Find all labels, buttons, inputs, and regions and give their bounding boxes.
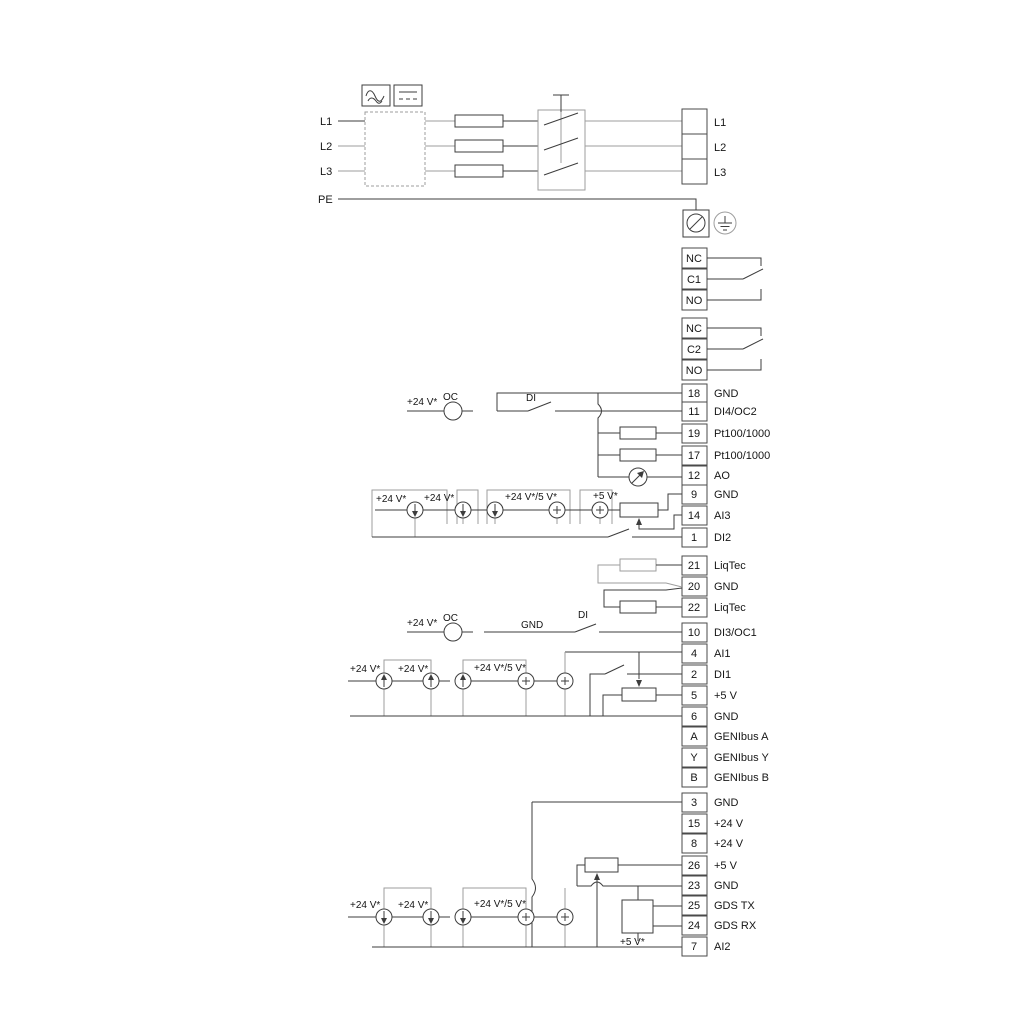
input-label-l3: L3 [320, 166, 332, 178]
input-label-l2: L2 [320, 141, 332, 153]
v24-label: +24 V* [407, 397, 437, 408]
terminal-label: L2 [714, 142, 726, 154]
voltage-source-icon [592, 502, 608, 518]
wire-gnd3 [532, 802, 682, 947]
gds-sensor-box [622, 900, 653, 933]
pt100-resistor-icon [620, 449, 656, 461]
v24-label: +24 V* [398, 900, 428, 911]
voltage-source-icon [557, 909, 573, 925]
v24-5v-label: +24 V*/5 V* [505, 492, 557, 503]
terminal-number: 7 [691, 941, 697, 953]
terminal-number: 20 [688, 581, 700, 593]
terminal-label: GDS TX [714, 900, 755, 912]
terminal-label: Pt100/1000 [714, 428, 770, 440]
earth-icon [718, 216, 732, 230]
terminal-number: 4 [691, 648, 697, 660]
v24-label: +24 V* [398, 664, 428, 675]
terminal-label: DI1 [714, 669, 731, 681]
terminal-number: Y [690, 752, 698, 764]
v5-label: +5 V* [620, 937, 645, 948]
filter-box [365, 112, 425, 186]
option-brackets [384, 652, 565, 716]
wire-fuses-to-switch [503, 121, 538, 171]
option-stubs [415, 518, 600, 537]
wire-l2-l3-in [338, 146, 365, 171]
dc-symbol-box [394, 85, 422, 106]
potentiometer-icon [620, 503, 658, 517]
terminal-label: GND [714, 711, 739, 723]
terminal-label: AO [714, 470, 730, 482]
dc-symbol-icon [399, 92, 417, 99]
terminal-number: 12 [688, 470, 700, 482]
terminal-label: DI3/OC1 [714, 627, 757, 639]
ai1-option-wiring: +24 V* +24 V* +24 V*/5 V* [348, 652, 682, 716]
di1-switch-icon [605, 665, 624, 674]
terminal-label: +24 V [714, 818, 744, 830]
wire-pot-to-gnd [603, 695, 622, 716]
current-source-icon [423, 909, 439, 925]
oc-label: OC [443, 613, 458, 624]
switch-handle-icon [553, 95, 569, 112]
io-bottom-terminal-block: 3 GND 15 +24 V 8 +24 V 26 +5 V 23 GND 25… [682, 793, 757, 956]
sensor-bus-vertical [598, 393, 602, 477]
terminal-label: C2 [687, 344, 701, 356]
terminal-label: +5 V [714, 860, 738, 872]
potentiometer-icon [585, 858, 618, 872]
terminal-number: 26 [688, 860, 700, 872]
terminal-number: 8 [691, 838, 697, 850]
v24-label: +24 V* [424, 493, 454, 504]
terminal-number: 22 [688, 602, 700, 614]
liqtec-sensor-icon [620, 601, 656, 613]
liqtec-loop-1 [598, 565, 682, 587]
terminal-l3 [682, 159, 707, 184]
relay1-contact-icon [743, 269, 763, 279]
pot-wiper-arrowhead [636, 518, 642, 525]
terminal-number: B [690, 772, 697, 784]
terminal-number: A [690, 731, 698, 743]
terminal-number: 24 [688, 920, 700, 932]
v24-5v-label: +24 V*/5 V* [474, 663, 526, 674]
liqtec-sensor-icon [620, 559, 656, 571]
v24-label: +24 V* [407, 618, 437, 629]
v24-label: +24 V* [350, 900, 380, 911]
terminal-label: GND [714, 797, 739, 809]
input-label-pe: PE [318, 194, 333, 206]
terminal-label: DI4/OC2 [714, 406, 757, 418]
gnd-wire-label: GND [521, 620, 543, 631]
voltage-source-icon [518, 673, 534, 689]
wire-di-box-to-gnd18 [497, 393, 682, 411]
fuse-l2-icon [455, 140, 503, 152]
terminal-label: LiqTec [714, 602, 746, 614]
wire-gnd23 [577, 882, 682, 886]
terminal-number: 5 [691, 690, 697, 702]
current-source-icon [423, 673, 439, 689]
terminal-label: GENIbus B [714, 772, 769, 784]
di-label: DI [526, 393, 536, 404]
terminal-number: 17 [688, 450, 700, 462]
ac-symbol-icon [366, 91, 384, 104]
relay2-section: NC C2 NO [682, 318, 763, 380]
ai3-option-wiring: +24 V* +24 V* +24 V*/5 V* +5 V* [372, 490, 682, 537]
ai2-gds-option-wiring: +24 V* +24 V* +24 V*/5 V* +5 V* [348, 802, 682, 948]
terminal-label: GENIbus Y [714, 752, 769, 764]
relay1-wires [707, 258, 761, 300]
terminal-number: 23 [688, 880, 700, 892]
current-source-icon [455, 673, 471, 689]
fuse-l3-icon [455, 165, 503, 177]
current-source-icon [376, 909, 392, 925]
terminal-l1 [682, 109, 707, 134]
pt100-resistor-icon [620, 427, 656, 439]
terminal-number: 19 [688, 428, 700, 440]
terminal-label: +24 V [714, 838, 744, 850]
terminal-number: 9 [691, 489, 697, 501]
v5-label: +5 V* [593, 491, 618, 502]
terminal-label: DI2 [714, 532, 731, 544]
potentiometer-icon [622, 688, 656, 701]
terminal-label: GND [714, 581, 739, 593]
terminal-label: L1 [714, 117, 726, 129]
current-source-icon [407, 502, 423, 518]
fuse-l1-icon [455, 115, 503, 127]
liqtec-terminal-block: 21 LiqTec 20 GND 22 LiqTec [598, 556, 746, 617]
terminal-label: GND [714, 388, 739, 400]
input-label-l1: L1 [320, 116, 332, 128]
terminal-number: 18 [688, 388, 700, 400]
relay2-contact-icon [743, 339, 763, 349]
terminal-number: 25 [688, 900, 700, 912]
current-source-icon [487, 502, 503, 518]
terminal-label: NO [686, 365, 703, 377]
power-input-section: L1 L2 L3 PE L1 L2 L3 [318, 85, 736, 237]
terminal-label: GND [714, 489, 739, 501]
terminal-l2 [682, 134, 707, 159]
terminal-number: 6 [691, 711, 697, 723]
open-collector-icon [444, 623, 462, 641]
terminal-label: LiqTec [714, 560, 746, 572]
terminal-label: NO [686, 295, 703, 307]
open-collector-icon [444, 402, 462, 420]
relay1-section: NC C1 NO [682, 248, 763, 310]
wire-pot-left [577, 865, 585, 886]
terminal-label: Pt100/1000 [714, 450, 770, 462]
terminal-number: 14 [688, 510, 700, 522]
terminal-label: NC [686, 253, 702, 265]
terminal-number: 1 [691, 532, 697, 544]
wire-gds-txrx [653, 906, 682, 926]
current-source-icon [455, 909, 471, 925]
di4-pt100-ao-wiring: +24 V* OC DI [407, 392, 682, 486]
v24-label: +24 V* [376, 494, 406, 505]
terminal-number: 3 [691, 797, 697, 809]
di2-switch-icon [608, 529, 629, 537]
terminal-number: 21 [688, 560, 700, 572]
terminal-label: GDS RX [714, 920, 757, 932]
io-mid-terminal-block: 4 AI1 2 DI1 5 +5 V 6 GND A GENIbus A Y G… [682, 644, 769, 787]
v24-5v-label: +24 V*/5 V* [474, 899, 526, 910]
v24-label: +24 V* [350, 664, 380, 675]
terminal-label: C1 [687, 274, 701, 286]
terminal-number: 11 [688, 406, 699, 418]
terminal-label: AI3 [714, 510, 731, 522]
di3-switch-icon [575, 624, 596, 632]
di-label: DI [578, 610, 588, 621]
wiring-diagram-page: L1 L2 L3 PE L1 L2 L3 [0, 0, 1024, 1024]
terminal-label: AI1 [714, 648, 731, 660]
pot-wiper-arrowhead [636, 680, 642, 687]
terminal-label: GND [714, 880, 739, 892]
io-top-terminal-block: 18 GND 11 DI4/OC2 19 Pt100/1000 17 Pt100… [682, 384, 770, 547]
oc-label: OC [443, 392, 458, 403]
wiring-diagram: L1 L2 L3 PE L1 L2 L3 [0, 0, 1024, 1024]
wire-pot-to-gnd9 [658, 494, 682, 510]
current-source-icon [376, 673, 392, 689]
terminal-label: NC [686, 323, 702, 335]
terminal-label: +5 V [714, 690, 738, 702]
terminal-number: 10 [688, 627, 700, 639]
terminal-label: GENIbus A [714, 731, 769, 743]
voltage-source-icon [557, 673, 573, 689]
terminal-label: L3 [714, 167, 726, 179]
terminal-label: AI2 [714, 941, 731, 953]
wire-filter-to-fuses [425, 121, 455, 171]
pot-wiper-arrowhead [594, 873, 600, 880]
wire-pe [338, 199, 696, 210]
terminal-number: 15 [688, 818, 700, 830]
terminal-number: 2 [691, 669, 697, 681]
voltage-source-icon [518, 909, 534, 925]
voltage-source-icon [549, 502, 565, 518]
wire-switch-to-terminals [585, 121, 682, 171]
current-source-icon [455, 502, 471, 518]
relay2-wires [707, 328, 761, 370]
